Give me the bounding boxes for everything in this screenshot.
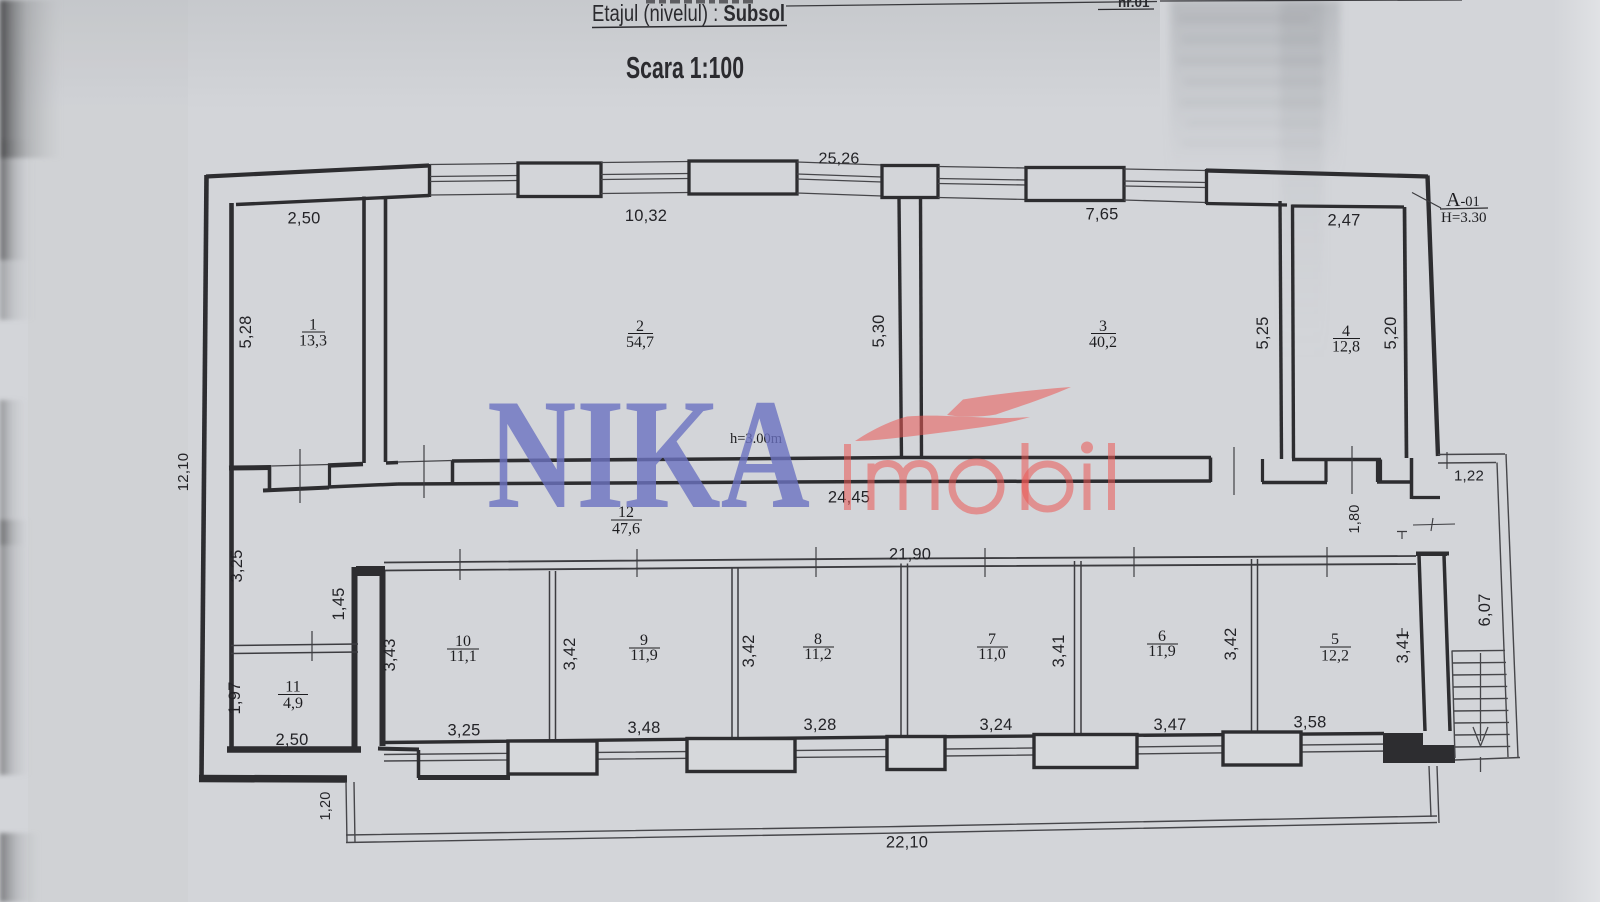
svg-text:12,8: 12,8 bbox=[1332, 339, 1360, 356]
svg-text:7,65: 7,65 bbox=[1086, 206, 1119, 224]
svg-text:11,1: 11,1 bbox=[449, 648, 476, 665]
svg-text:13,3: 13,3 bbox=[299, 333, 327, 350]
svg-text:5,25: 5,25 bbox=[1254, 317, 1272, 350]
svg-text:2,50: 2,50 bbox=[276, 731, 309, 749]
svg-text:22,10: 22,10 bbox=[886, 834, 928, 852]
svg-text:1,80: 1,80 bbox=[1347, 504, 1363, 533]
svg-text:3,28: 3,28 bbox=[804, 716, 837, 734]
svg-text:11,9: 11,9 bbox=[1148, 643, 1175, 660]
svg-text:3: 3 bbox=[1099, 318, 1107, 335]
svg-text:3,42: 3,42 bbox=[740, 635, 758, 668]
svg-text:40,2: 40,2 bbox=[1089, 334, 1117, 351]
svg-text:3,25: 3,25 bbox=[448, 722, 481, 740]
svg-text:3,24: 3,24 bbox=[980, 716, 1013, 734]
svg-text:Scara 1:100: Scara 1:100 bbox=[626, 50, 744, 85]
svg-text:12,10: 12,10 bbox=[175, 453, 192, 492]
svg-text:21,90: 21,90 bbox=[889, 546, 931, 564]
svg-text:3,42: 3,42 bbox=[1222, 628, 1240, 661]
svg-text:1,20: 1,20 bbox=[318, 791, 334, 820]
svg-text:3,47: 3,47 bbox=[1154, 716, 1187, 734]
svg-text:4: 4 bbox=[1342, 323, 1350, 340]
svg-text:Etajul (nivelul) : Subsol: Etajul (nivelul) : Subsol bbox=[592, 0, 785, 26]
svg-text:5,28: 5,28 bbox=[237, 316, 255, 349]
svg-text:2: 2 bbox=[636, 318, 644, 335]
svg-text:3,42: 3,42 bbox=[561, 638, 579, 671]
svg-text:NIKA: NIKA bbox=[487, 367, 810, 542]
svg-text:2,47: 2,47 bbox=[1328, 212, 1361, 230]
svg-text:5: 5 bbox=[1331, 631, 1339, 648]
svg-text:10,32: 10,32 bbox=[625, 207, 667, 225]
svg-text:4,9: 4,9 bbox=[283, 695, 303, 712]
svg-text:3,41: 3,41 bbox=[1394, 631, 1412, 664]
svg-text:1,45: 1,45 bbox=[330, 588, 348, 621]
svg-text:6,07: 6,07 bbox=[1476, 594, 1494, 627]
svg-text:1,22: 1,22 bbox=[1454, 468, 1484, 485]
svg-text:54,7: 54,7 bbox=[626, 334, 654, 351]
svg-text:H=3.30: H=3.30 bbox=[1441, 210, 1487, 226]
svg-text:11,9: 11,9 bbox=[630, 647, 657, 664]
svg-text:11: 11 bbox=[285, 679, 300, 696]
svg-text:12,2: 12,2 bbox=[1321, 648, 1349, 665]
svg-text:11,0: 11,0 bbox=[978, 646, 1005, 663]
svg-text:1,97: 1,97 bbox=[226, 682, 244, 715]
svg-text:2,50: 2,50 bbox=[288, 210, 321, 228]
svg-text:3,25: 3,25 bbox=[228, 550, 246, 583]
svg-text:5,30: 5,30 bbox=[870, 315, 888, 348]
svg-text:3,48: 3,48 bbox=[628, 719, 661, 737]
svg-text:3,58: 3,58 bbox=[1294, 714, 1327, 732]
svg-text:3,41: 3,41 bbox=[1050, 635, 1068, 668]
svg-text:11,2: 11,2 bbox=[804, 646, 831, 663]
svg-text:1: 1 bbox=[309, 317, 317, 334]
svg-text:5,20: 5,20 bbox=[1382, 317, 1400, 350]
svg-text:25,26: 25,26 bbox=[818, 151, 859, 168]
svg-text:3,43: 3,43 bbox=[381, 639, 399, 672]
